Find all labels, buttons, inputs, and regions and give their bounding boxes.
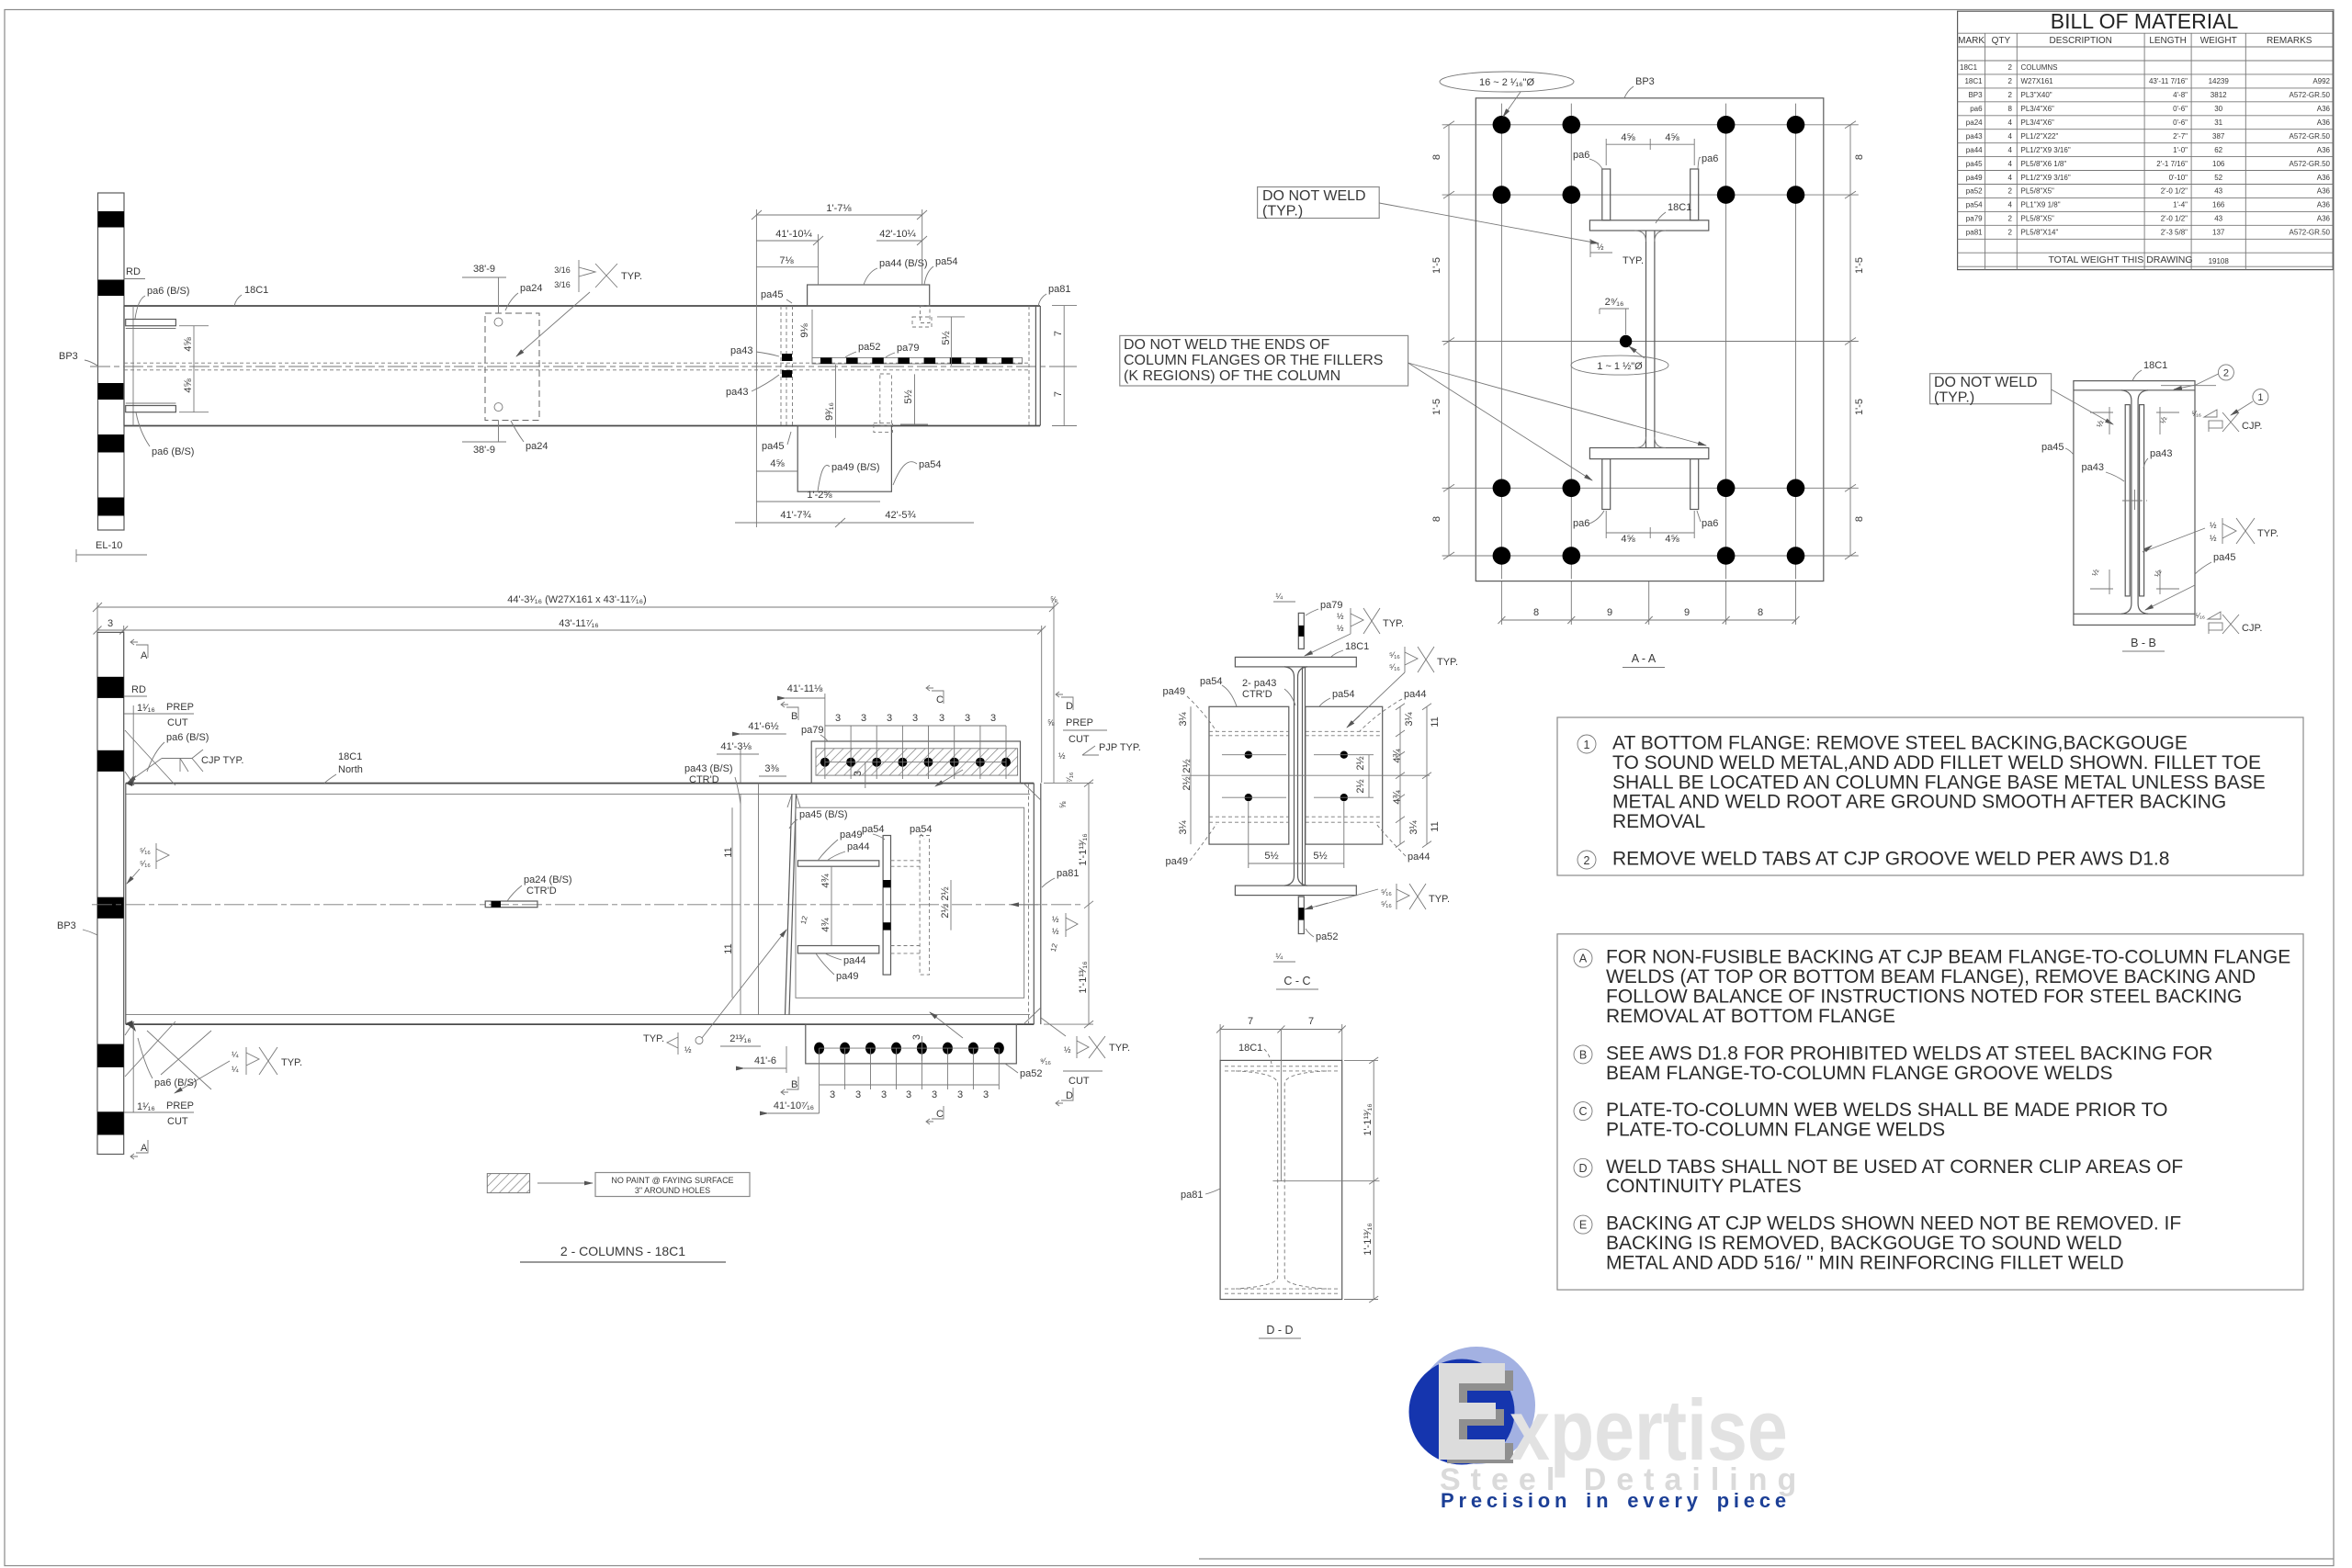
svg-text:½: ½ bbox=[2210, 534, 2217, 543]
svg-text:pa81: pa81 bbox=[1057, 868, 1079, 879]
svg-text:pa54: pa54 bbox=[1332, 689, 1354, 700]
svg-text:3/16: 3/16 bbox=[554, 265, 571, 275]
svg-text:pa43: pa43 bbox=[2082, 462, 2104, 473]
svg-text:pa79: pa79 bbox=[1320, 600, 1342, 611]
svg-text:9⅛: 9⅛ bbox=[799, 323, 810, 338]
svg-text:43: 43 bbox=[2214, 215, 2222, 223]
svg-text:DO NOT WELD: DO NOT WELD bbox=[1262, 188, 1366, 204]
svg-text:C: C bbox=[936, 1109, 944, 1120]
svg-text:11: 11 bbox=[723, 943, 734, 953]
svg-text:½: ½ bbox=[2095, 419, 2106, 428]
svg-text:pa44: pa44 bbox=[1404, 689, 1426, 700]
svg-text:2'-1 7/16": 2'-1 7/16" bbox=[2156, 160, 2188, 168]
svg-text:North: North bbox=[338, 764, 363, 775]
svg-text:11: 11 bbox=[1430, 716, 1441, 727]
svg-text:BACKING AT CJP WELDS SHOWN NEE: BACKING AT CJP WELDS SHOWN NEED NOT BE R… bbox=[1606, 1213, 2181, 1235]
svg-text:PJP TYP.: PJP TYP. bbox=[1099, 742, 1141, 753]
svg-text:pa24: pa24 bbox=[1966, 118, 1983, 127]
svg-text:3: 3 bbox=[906, 1089, 911, 1100]
svg-text:⁵⁄₁₆: ⁵⁄₁₆ bbox=[1389, 650, 1400, 660]
svg-text:11: 11 bbox=[1430, 821, 1441, 831]
svg-text:⁵⁄₁₆: ⁵⁄₁₆ bbox=[1389, 662, 1400, 671]
svg-text:41'-10¼: 41'-10¼ bbox=[775, 229, 812, 240]
svg-text:3⅜: 3⅜ bbox=[764, 763, 779, 774]
svg-text:TYP.: TYP. bbox=[1437, 657, 1458, 668]
svg-text:TYP.: TYP. bbox=[1623, 255, 1644, 266]
svg-text:pa44: pa44 bbox=[1966, 146, 1983, 154]
svg-text:pa43: pa43 bbox=[726, 387, 748, 398]
svg-text:PL1/2"X9 3/16": PL1/2"X9 3/16" bbox=[2021, 146, 2071, 154]
svg-text:¼: ¼ bbox=[1275, 592, 1283, 601]
svg-text:pa6: pa6 bbox=[1702, 153, 1718, 164]
svg-text:pa54: pa54 bbox=[1966, 201, 1983, 209]
svg-text:BP3: BP3 bbox=[1635, 76, 1655, 87]
svg-text:pa6 (B/S): pa6 (B/S) bbox=[147, 286, 189, 297]
svg-text:A - A: A - A bbox=[1632, 652, 1657, 665]
svg-text:2½: 2½ bbox=[1355, 756, 1366, 770]
svg-text:19108: 19108 bbox=[2209, 257, 2230, 265]
svg-text:pa49 (B/S): pa49 (B/S) bbox=[831, 462, 880, 473]
svg-text:REMOVAL AT BOTTOM FLANGE: REMOVAL AT BOTTOM FLANGE bbox=[1606, 1006, 1895, 1027]
svg-text:⁵⁄₁₆: ⁵⁄₁₆ bbox=[2195, 612, 2205, 620]
svg-text:5½: 5½ bbox=[1313, 851, 1327, 862]
svg-text:pa45 (B/S): pa45 (B/S) bbox=[799, 809, 848, 820]
svg-text:PL3"X40": PL3"X40" bbox=[2021, 91, 2052, 99]
svg-text:CTR'D: CTR'D bbox=[689, 774, 719, 785]
svg-text:2¹³⁄₁₆: 2¹³⁄₁₆ bbox=[729, 1033, 751, 1044]
svg-text:A36: A36 bbox=[2317, 174, 2331, 182]
svg-text:PL5/8"X6 1/8": PL5/8"X6 1/8" bbox=[2021, 160, 2067, 168]
svg-text:41'-10⁷⁄₁₆: 41'-10⁷⁄₁₆ bbox=[774, 1100, 814, 1111]
svg-text:B: B bbox=[791, 1079, 797, 1090]
svg-text:¼: ¼ bbox=[232, 1050, 239, 1059]
svg-text:18C1: 18C1 bbox=[1238, 1043, 1262, 1054]
svg-text:1'-2⅝: 1'-2⅝ bbox=[807, 490, 832, 501]
svg-text:2: 2 bbox=[2008, 77, 2013, 85]
svg-text:SEE AWS D1.8 FOR PROHIBITED WE: SEE AWS D1.8 FOR PROHIBITED WELDS AT STE… bbox=[1606, 1043, 2212, 1064]
svg-text:9³⁄₁₆: 9³⁄₁₆ bbox=[824, 402, 835, 421]
svg-text:PL5/8"X5": PL5/8"X5" bbox=[2021, 215, 2055, 223]
svg-text:⁵⁄₁₆: ⁵⁄₁₆ bbox=[140, 859, 151, 868]
svg-text:PREP: PREP bbox=[166, 1100, 194, 1111]
svg-text:COLUMN FLANGES OR THE FILLERS: COLUMN FLANGES OR THE FILLERS bbox=[1124, 353, 1383, 368]
svg-text:TYP.: TYP. bbox=[2257, 528, 2278, 539]
svg-text:8: 8 bbox=[1431, 516, 1442, 522]
svg-text:0'-6": 0'-6" bbox=[2173, 105, 2188, 113]
svg-text:pa54: pa54 bbox=[935, 256, 957, 267]
svg-text:⁵⁄₁₆: ⁵⁄₁₆ bbox=[2191, 410, 2201, 418]
svg-text:41'-3⅛: 41'-3⅛ bbox=[720, 741, 752, 752]
svg-text:1'-1¹³⁄₁₆: 1'-1¹³⁄₁₆ bbox=[1363, 1223, 1374, 1255]
svg-text:pa54: pa54 bbox=[862, 824, 884, 835]
svg-text:COLUMNS: COLUMNS bbox=[2021, 63, 2058, 72]
svg-text:CTR'D: CTR'D bbox=[526, 886, 557, 897]
svg-text:pa6: pa6 bbox=[1970, 105, 1983, 113]
svg-text:TYP.: TYP. bbox=[1109, 1043, 1130, 1054]
svg-text:1'-5: 1'-5 bbox=[1854, 257, 1865, 274]
svg-text:2'-7": 2'-7" bbox=[2173, 132, 2188, 141]
svg-text:½: ½ bbox=[2153, 569, 2164, 578]
svg-text:9: 9 bbox=[1684, 607, 1690, 618]
svg-text:C - C: C - C bbox=[1283, 975, 1310, 987]
svg-text:4⅝: 4⅝ bbox=[1665, 132, 1679, 143]
svg-text:pa45: pa45 bbox=[1966, 160, 1983, 168]
svg-text:PL1"X9 1/8": PL1"X9 1/8" bbox=[2021, 201, 2061, 209]
svg-text:pa54: pa54 bbox=[1200, 676, 1222, 687]
svg-text:3: 3 bbox=[939, 713, 944, 724]
svg-text:(TYP.): (TYP.) bbox=[1934, 390, 1974, 406]
svg-text:9: 9 bbox=[1607, 607, 1612, 618]
svg-text:BP3: BP3 bbox=[1968, 91, 1983, 99]
svg-text:3" AROUND HOLES: 3" AROUND HOLES bbox=[635, 1186, 710, 1195]
svg-text:3: 3 bbox=[957, 1089, 963, 1100]
svg-text:4'-8": 4'-8" bbox=[2173, 91, 2188, 99]
svg-text:2½: 2½ bbox=[940, 904, 951, 918]
svg-text:3: 3 bbox=[861, 713, 866, 724]
svg-text:106: 106 bbox=[2212, 160, 2225, 168]
svg-text:8: 8 bbox=[1854, 154, 1865, 160]
svg-text:137: 137 bbox=[2212, 229, 2225, 237]
svg-text:pa6 (B/S): pa6 (B/S) bbox=[166, 732, 209, 743]
svg-text:pa49: pa49 bbox=[1163, 686, 1185, 697]
svg-text:Precision in every piece: Precision in every piece bbox=[1441, 1489, 1791, 1512]
svg-text:A572-GR.50: A572-GR.50 bbox=[2290, 132, 2331, 141]
svg-text:5½: 5½ bbox=[941, 331, 952, 344]
svg-text:A572-GR.50: A572-GR.50 bbox=[2290, 91, 2331, 99]
svg-text:18C1: 18C1 bbox=[2143, 360, 2167, 371]
svg-text:CUT: CUT bbox=[1069, 1076, 1090, 1087]
svg-text:QTY: QTY bbox=[1992, 36, 2011, 46]
svg-text:1 ~ 1 ½"Ø: 1 ~ 1 ½"Ø bbox=[1597, 361, 1643, 372]
svg-text:½: ½ bbox=[1058, 751, 1066, 761]
svg-text:30: 30 bbox=[2214, 105, 2222, 113]
svg-text:43: 43 bbox=[2214, 187, 2222, 196]
svg-text:A36: A36 bbox=[2317, 105, 2331, 113]
svg-text:pa43: pa43 bbox=[730, 345, 752, 356]
svg-text:41'-6: 41'-6 bbox=[754, 1055, 776, 1066]
svg-text:387: 387 bbox=[2212, 132, 2225, 141]
svg-text:2: 2 bbox=[2008, 229, 2013, 237]
svg-text:TYP.: TYP. bbox=[621, 271, 642, 282]
svg-text:REMARKS: REMARKS bbox=[2267, 36, 2312, 46]
svg-text:11: 11 bbox=[723, 847, 734, 857]
svg-text:NO PAINT @ FAYING SURFACE: NO PAINT @ FAYING SURFACE bbox=[611, 1176, 733, 1185]
svg-text:pa52: pa52 bbox=[858, 342, 880, 353]
svg-text:½: ½ bbox=[2090, 568, 2101, 577]
svg-text:3: 3 bbox=[983, 1089, 989, 1100]
svg-text:2- pa43: 2- pa43 bbox=[1242, 678, 1276, 689]
svg-text:pa24 (B/S): pa24 (B/S) bbox=[524, 874, 572, 886]
svg-text:14239: 14239 bbox=[2209, 77, 2230, 85]
svg-text:12: 12 bbox=[799, 915, 809, 925]
svg-text:4: 4 bbox=[2008, 174, 2013, 182]
svg-text:5½: 5½ bbox=[903, 389, 914, 403]
svg-text:pa79: pa79 bbox=[801, 725, 823, 736]
svg-text:4: 4 bbox=[2008, 118, 2013, 127]
svg-text:⁵⁄₁₆: ⁵⁄₁₆ bbox=[1381, 887, 1392, 897]
svg-text:½: ½ bbox=[1597, 243, 1604, 252]
svg-text:2: 2 bbox=[2008, 187, 2013, 196]
svg-text:PL3/4"X6": PL3/4"X6" bbox=[2021, 105, 2055, 113]
svg-text:PREP: PREP bbox=[166, 702, 194, 713]
svg-text:1: 1 bbox=[2257, 392, 2263, 403]
svg-text:TYP.: TYP. bbox=[1429, 894, 1450, 905]
svg-text:2: 2 bbox=[2223, 368, 2229, 379]
svg-text:2'-0 1/2": 2'-0 1/2" bbox=[2161, 187, 2188, 196]
svg-text:A992: A992 bbox=[2312, 77, 2330, 85]
svg-text:3: 3 bbox=[881, 1089, 887, 1100]
svg-text:FOLLOW BALANCE OF INSTRUCTIONS: FOLLOW BALANCE OF INSTRUCTIONS NOTED FOR… bbox=[1606, 986, 2242, 1007]
svg-text:W27X161: W27X161 bbox=[2021, 77, 2054, 85]
svg-text:1'-4": 1'-4" bbox=[2173, 201, 2188, 209]
svg-text:⁵⁄₁₆: ⁵⁄₁₆ bbox=[140, 846, 151, 855]
svg-text:TYP.: TYP. bbox=[643, 1033, 664, 1044]
svg-text:3: 3 bbox=[107, 618, 113, 629]
svg-text:BP3: BP3 bbox=[59, 351, 78, 362]
svg-text:D: D bbox=[1066, 1090, 1073, 1101]
svg-text:2½: 2½ bbox=[940, 886, 951, 900]
svg-text:pa6 (B/S): pa6 (B/S) bbox=[152, 446, 194, 457]
svg-text:pa49: pa49 bbox=[840, 829, 862, 840]
svg-text:38'-9: 38'-9 bbox=[473, 445, 495, 456]
svg-text:8: 8 bbox=[1431, 154, 1442, 160]
svg-text:A36: A36 bbox=[2317, 201, 2331, 209]
svg-text:½: ½ bbox=[1052, 927, 1059, 936]
svg-text:WEIGHT: WEIGHT bbox=[2200, 36, 2237, 46]
svg-text:PL5/8"X5": PL5/8"X5" bbox=[2021, 187, 2055, 196]
svg-text:REMOVAL: REMOVAL bbox=[1612, 811, 1705, 832]
svg-text:PREP: PREP bbox=[1066, 717, 1093, 728]
svg-text:METAL AND ADD 516/ " MIN REINF: METAL AND ADD 516/ " MIN REINFORCING FIL… bbox=[1606, 1252, 2124, 1273]
svg-text:18C1: 18C1 bbox=[1960, 63, 1978, 72]
svg-text:TOTAL WEIGHT THIS DRAWING: TOTAL WEIGHT THIS DRAWING bbox=[2048, 254, 2192, 265]
svg-text:D: D bbox=[1578, 1162, 1587, 1175]
svg-text:pa45: pa45 bbox=[761, 289, 783, 300]
svg-text:REMOVE WELD TABS AT CJP GROOVE: REMOVE WELD TABS AT CJP GROOVE WELD PER … bbox=[1612, 849, 2169, 870]
svg-text:18C1: 18C1 bbox=[244, 285, 268, 296]
svg-text:42'-5¾: 42'-5¾ bbox=[885, 510, 916, 521]
svg-text:pa6: pa6 bbox=[1702, 518, 1718, 529]
svg-text:4¾: 4¾ bbox=[1392, 749, 1403, 763]
svg-text:3: 3 bbox=[990, 713, 996, 724]
svg-text:3¼: 3¼ bbox=[1404, 712, 1415, 727]
svg-text:BACKING IS REMOVED, BACKGOUGE: BACKING IS REMOVED, BACKGOUGE TO SOUND W… bbox=[1606, 1233, 2122, 1254]
svg-text:A: A bbox=[141, 650, 148, 661]
svg-text:B - B: B - B bbox=[2131, 637, 2156, 649]
svg-text:43'-11 7/16": 43'-11 7/16" bbox=[2149, 77, 2188, 85]
svg-text:½: ½ bbox=[2210, 521, 2217, 530]
svg-text:4: 4 bbox=[2008, 146, 2013, 154]
svg-text:C: C bbox=[1578, 1105, 1587, 1118]
svg-text:2: 2 bbox=[1584, 854, 1590, 867]
svg-text:5½: 5½ bbox=[1264, 851, 1278, 862]
svg-text:BP3: BP3 bbox=[57, 920, 76, 931]
svg-text:18C1: 18C1 bbox=[338, 751, 362, 762]
svg-text:CUT: CUT bbox=[167, 1116, 188, 1127]
svg-text:pa44 (B/S): pa44 (B/S) bbox=[879, 258, 928, 269]
svg-text:8: 8 bbox=[1854, 516, 1865, 522]
svg-text:2: 2 bbox=[2008, 63, 2013, 72]
svg-text:A36: A36 bbox=[2317, 215, 2331, 223]
svg-text:pa6: pa6 bbox=[1573, 518, 1589, 529]
svg-text:SHALL BE LOCATED AN COLUMN FLA: SHALL BE LOCATED AN COLUMN FLANGE BASE M… bbox=[1612, 772, 2266, 793]
svg-text:pa54: pa54 bbox=[910, 824, 932, 835]
svg-text:1'-0": 1'-0" bbox=[2173, 146, 2188, 154]
svg-text:7⅛: 7⅛ bbox=[779, 255, 794, 266]
svg-text:pa52: pa52 bbox=[1966, 187, 1983, 196]
svg-text:⁵⁄₁₆: ⁵⁄₁₆ bbox=[1381, 899, 1392, 908]
svg-text:⅝: ⅝ bbox=[1047, 718, 1055, 728]
svg-text:3¼: 3¼ bbox=[1408, 820, 1419, 835]
svg-text:7: 7 bbox=[1308, 1016, 1314, 1027]
svg-text:4⅝: 4⅝ bbox=[1621, 534, 1635, 545]
svg-text:AT BOTTOM FLANGE: REMOVE STEEL: AT BOTTOM FLANGE: REMOVE STEEL BACKING,B… bbox=[1612, 733, 2188, 754]
svg-text:2'-0 1/2": 2'-0 1/2" bbox=[2161, 215, 2188, 223]
svg-text:⁹⁄₁₆: ⁹⁄₁₆ bbox=[1040, 1056, 1051, 1066]
svg-text:pa6: pa6 bbox=[1573, 150, 1589, 161]
svg-text:C: C bbox=[936, 694, 944, 705]
svg-text:166: 166 bbox=[2212, 201, 2225, 209]
svg-text:A36: A36 bbox=[2317, 187, 2331, 196]
svg-text:pa43: pa43 bbox=[2150, 448, 2172, 459]
svg-text:TO SOUND WELD METAL,AND ADD FI: TO SOUND WELD METAL,AND ADD FILLET WELD … bbox=[1612, 752, 2261, 773]
svg-text:1'-5: 1'-5 bbox=[1431, 399, 1442, 415]
svg-text:4: 4 bbox=[2008, 132, 2013, 141]
svg-text:2: 2 bbox=[2008, 215, 2013, 223]
svg-text:A572-GR.50: A572-GR.50 bbox=[2290, 229, 2331, 237]
svg-text:1'-1¹³⁄₁₆: 1'-1¹³⁄₁₆ bbox=[1078, 961, 1089, 993]
svg-text:41'-7¾: 41'-7¾ bbox=[780, 510, 811, 521]
svg-text:CJP TYP.: CJP TYP. bbox=[201, 755, 243, 766]
svg-text:pa79: pa79 bbox=[1966, 215, 1983, 223]
svg-text:BEAM FLANGE-TO-COLUMN FLANGE G: BEAM FLANGE-TO-COLUMN FLANGE GROOVE WELD… bbox=[1606, 1063, 2113, 1084]
svg-text:D: D bbox=[1066, 701, 1073, 712]
svg-text:DESCRIPTION: DESCRIPTION bbox=[2050, 36, 2112, 46]
svg-text:PL1/2"X22": PL1/2"X22" bbox=[2021, 132, 2059, 141]
svg-text:38'-9: 38'-9 bbox=[473, 264, 495, 275]
svg-text:PL1/2"X9 3/16": PL1/2"X9 3/16" bbox=[2021, 174, 2071, 182]
svg-text:62: 62 bbox=[2214, 146, 2222, 154]
svg-text:(TYP.): (TYP.) bbox=[1262, 204, 1303, 220]
svg-text:TYP.: TYP. bbox=[1383, 618, 1404, 629]
svg-text:½: ½ bbox=[1064, 1045, 1071, 1055]
svg-text:7: 7 bbox=[1053, 331, 1064, 336]
svg-text:A: A bbox=[141, 1143, 148, 1154]
svg-text:B: B bbox=[1579, 1048, 1587, 1061]
svg-text:A36: A36 bbox=[2317, 118, 2331, 127]
svg-text:0'-10": 0'-10" bbox=[2169, 174, 2188, 182]
svg-text:31: 31 bbox=[2214, 118, 2222, 127]
svg-text:18C1: 18C1 bbox=[1964, 77, 1983, 85]
svg-text:2⁹⁄₁₆: 2⁹⁄₁₆ bbox=[1605, 297, 1624, 308]
svg-text:1¹⁄₁₆: 1¹⁄₁₆ bbox=[137, 1101, 155, 1112]
svg-text:½: ½ bbox=[1337, 624, 1344, 633]
svg-text:A572-GR.50: A572-GR.50 bbox=[2290, 160, 2331, 168]
svg-text:DO NOT WELD THE ENDS OF: DO NOT WELD THE ENDS OF bbox=[1124, 337, 1330, 353]
svg-text:1: 1 bbox=[1584, 739, 1590, 751]
svg-text:2½: 2½ bbox=[1182, 759, 1193, 773]
svg-text:E: E bbox=[1579, 1219, 1587, 1232]
svg-text:4¾: 4¾ bbox=[820, 874, 831, 888]
svg-text:¼: ¼ bbox=[232, 1065, 239, 1074]
svg-text:⅝: ⅝ bbox=[1058, 801, 1068, 808]
svg-text:TYP.: TYP. bbox=[281, 1057, 302, 1068]
svg-text:1'-1¹³⁄₁₆: 1'-1¹³⁄₁₆ bbox=[1078, 833, 1089, 865]
svg-text:PLATE-TO-COLUMN WEB WELDS SHAL: PLATE-TO-COLUMN WEB WELDS SHALL BE MADE … bbox=[1606, 1100, 2167, 1121]
svg-text:pa45: pa45 bbox=[2213, 552, 2235, 563]
svg-text:1'-5: 1'-5 bbox=[1854, 399, 1865, 415]
svg-text:½: ½ bbox=[1337, 612, 1344, 621]
svg-text:4¾: 4¾ bbox=[1392, 790, 1403, 805]
svg-text:2½: 2½ bbox=[1355, 779, 1366, 793]
svg-text:pa52: pa52 bbox=[1020, 1068, 1042, 1079]
svg-text:CONTINUITY PLATES: CONTINUITY PLATES bbox=[1606, 1176, 1802, 1197]
svg-text:41'-11⅛: 41'-11⅛ bbox=[787, 683, 823, 694]
svg-text:FOR NON-FUSIBLE BACKING AT CJP: FOR NON-FUSIBLE BACKING AT CJP BEAM FLAN… bbox=[1606, 947, 2290, 968]
svg-text:16 ~ 2 ¹⁄₁₆"Ø: 16 ~ 2 ¹⁄₁₆"Ø bbox=[1479, 77, 1534, 88]
svg-text:pa44: pa44 bbox=[847, 841, 869, 852]
svg-text:3: 3 bbox=[965, 713, 970, 724]
svg-text:pa44: pa44 bbox=[1408, 852, 1430, 863]
svg-text:RD: RD bbox=[131, 684, 146, 695]
svg-text:3: 3 bbox=[887, 713, 892, 724]
svg-text:BILL OF MATERIAL: BILL OF MATERIAL bbox=[2051, 9, 2239, 33]
svg-text:12: 12 bbox=[1049, 942, 1059, 953]
svg-text:4¾: 4¾ bbox=[820, 918, 831, 932]
svg-text:43'-11⁷⁄₁₆: 43'-11⁷⁄₁₆ bbox=[559, 618, 598, 629]
svg-text:4⅝: 4⅝ bbox=[183, 378, 194, 393]
svg-text:18C1: 18C1 bbox=[1345, 641, 1369, 652]
svg-text:PLATE-TO-COLUMN FLANGE WELDS: PLATE-TO-COLUMN FLANGE WELDS bbox=[1606, 1120, 1945, 1141]
svg-text:pa45: pa45 bbox=[2041, 442, 2064, 453]
svg-text:½: ½ bbox=[684, 1045, 692, 1055]
svg-text:RD: RD bbox=[126, 266, 141, 277]
svg-text:EL-10: EL-10 bbox=[96, 540, 122, 551]
svg-text:2: 2 bbox=[2008, 91, 2013, 99]
svg-text:2 - COLUMNS - 18C1: 2 - COLUMNS - 18C1 bbox=[560, 1244, 685, 1258]
svg-text:2½: 2½ bbox=[1182, 776, 1193, 790]
svg-text:41'-6½: 41'-6½ bbox=[748, 721, 778, 732]
svg-text:A36: A36 bbox=[2317, 146, 2331, 154]
svg-text:42'-10¼: 42'-10¼ bbox=[879, 229, 916, 240]
svg-text:WELD TABS SHALL NOT BE USED AT: WELD TABS SHALL NOT BE USED AT CORNER CL… bbox=[1606, 1156, 2183, 1178]
svg-text:3: 3 bbox=[912, 713, 918, 724]
svg-text:B: B bbox=[791, 711, 797, 722]
svg-text:8: 8 bbox=[2008, 105, 2013, 113]
svg-text:3: 3 bbox=[855, 1089, 861, 1100]
svg-text:3: 3 bbox=[911, 1034, 922, 1040]
svg-text:pa49: pa49 bbox=[836, 971, 858, 982]
svg-text:4⅝: 4⅝ bbox=[183, 337, 194, 352]
svg-text:1'-1¹³⁄₁₆: 1'-1¹³⁄₁₆ bbox=[1363, 1103, 1374, 1135]
svg-text:4: 4 bbox=[2008, 160, 2013, 168]
svg-text:(K REGIONS) OF THE COLUMN: (K REGIONS) OF THE COLUMN bbox=[1124, 368, 1340, 384]
svg-text:WELDS (AT TOP OR BOTTOM BEAM F: WELDS (AT TOP OR BOTTOM BEAM FLANGE), RE… bbox=[1606, 966, 2256, 987]
svg-text:pa79: pa79 bbox=[897, 343, 919, 354]
svg-text:4⅝: 4⅝ bbox=[770, 458, 785, 469]
svg-text:3: 3 bbox=[830, 1089, 835, 1100]
svg-text:3: 3 bbox=[932, 1089, 937, 1100]
svg-text:CUT: CUT bbox=[167, 717, 188, 728]
svg-text:1'-5: 1'-5 bbox=[1431, 257, 1442, 274]
svg-text:pa54: pa54 bbox=[919, 459, 941, 470]
svg-text:pa43: pa43 bbox=[1966, 132, 1983, 141]
svg-text:8: 8 bbox=[1758, 607, 1763, 618]
svg-text:PL3/4"X6": PL3/4"X6" bbox=[2021, 118, 2055, 127]
svg-text:1'-7⅛: 1'-7⅛ bbox=[826, 203, 852, 214]
svg-text:pa45: pa45 bbox=[762, 441, 784, 452]
svg-text:D - D: D - D bbox=[1266, 1324, 1293, 1337]
